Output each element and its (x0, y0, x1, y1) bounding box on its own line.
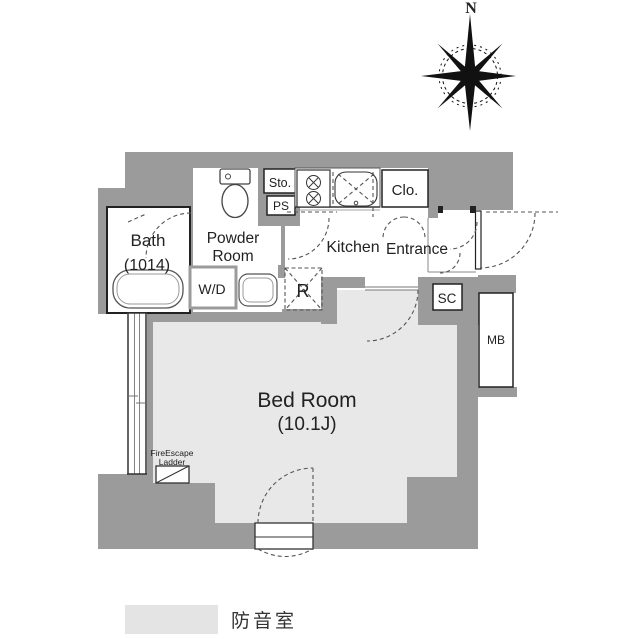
bathtub (113, 270, 183, 308)
legend-soundproof-label: 防音室 (231, 606, 297, 633)
legend-soundproof-swatch (125, 605, 218, 634)
powder-room-label-line1: Powder (207, 230, 260, 247)
meter-box-label: MB (487, 333, 505, 347)
fire-escape-ladder (156, 466, 189, 483)
closet-label: Clo. (392, 182, 419, 199)
toilet (220, 169, 250, 218)
kitchen-counter (287, 168, 380, 217)
floor-plan-svg: N Bath (1014) Powder Room W/D Sto. PS Ki… (0, 0, 640, 639)
bath-label: Bath (131, 231, 166, 250)
stove (297, 170, 330, 207)
bedroom-size-label: (10.1J) (277, 414, 336, 435)
shoe-closet-label: SC (438, 291, 457, 306)
powder-room-label-line2: Room (212, 248, 253, 265)
compass-north-label: N (465, 0, 477, 17)
kitchen-label: Kitchen (326, 239, 379, 256)
fire-escape-label-line2: Ladder (159, 457, 186, 467)
washer-dryer-label: W/D (198, 281, 225, 297)
bath-size-label: (1014) (124, 257, 170, 274)
refrigerator-label: R (297, 281, 310, 301)
bedroom-label: Bed Room (257, 389, 356, 412)
entrance-label: Entrance (386, 241, 448, 258)
bedroom-doorway-threshold (365, 277, 418, 290)
washbasin (239, 274, 277, 306)
storage-label: Sto. (269, 176, 291, 190)
pipe-space-label: PS (273, 199, 289, 213)
balcony-window (127, 313, 147, 474)
compass-rose: N (421, 0, 516, 131)
